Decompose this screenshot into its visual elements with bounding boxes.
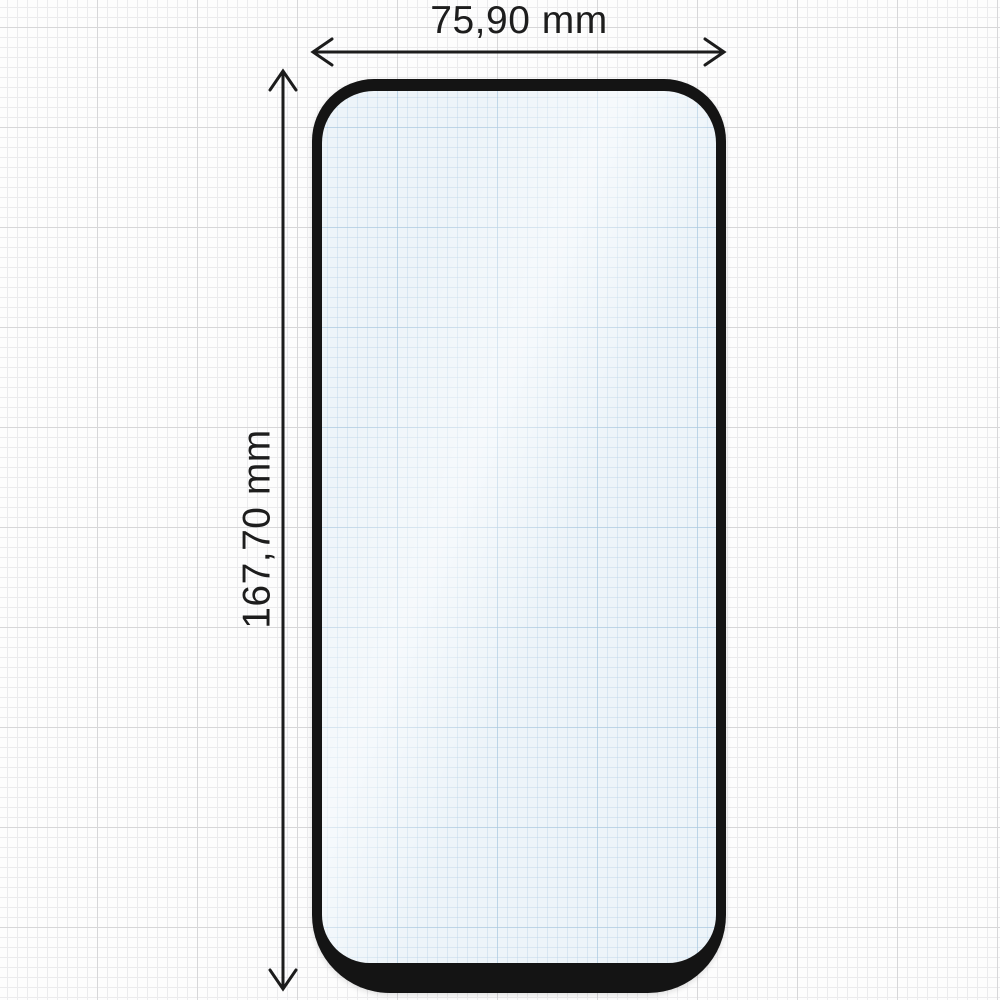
width-dimension-arrow xyxy=(313,39,724,65)
width-dimension-label: 75,90 mm xyxy=(312,1,726,40)
graph-paper-background: 75,90 mm 167,70 mm xyxy=(0,0,1000,1000)
arrow-up-head xyxy=(270,71,296,90)
screen-protector-frame xyxy=(312,79,726,993)
arrow-left-head xyxy=(313,39,332,65)
arrow-right-head xyxy=(705,39,724,65)
screen-protector-glass xyxy=(322,91,716,963)
arrow-down-head xyxy=(270,970,296,989)
height-dimension-label: 167,70 mm xyxy=(238,429,277,629)
